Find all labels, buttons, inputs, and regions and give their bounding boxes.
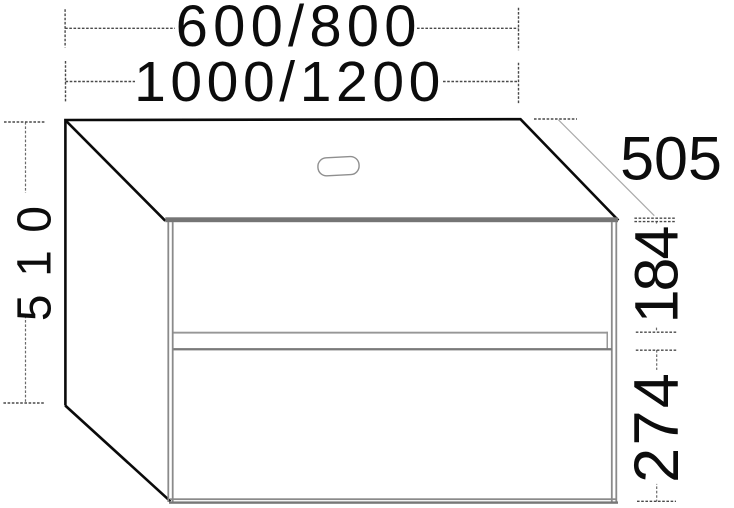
svg-text:505: 505 (620, 125, 722, 193)
svg-text:1000/1200: 1000/1200 (134, 50, 445, 114)
svg-text:510: 510 (9, 189, 62, 322)
svg-text:184: 184 (623, 227, 691, 324)
svg-text:274: 274 (622, 371, 692, 483)
